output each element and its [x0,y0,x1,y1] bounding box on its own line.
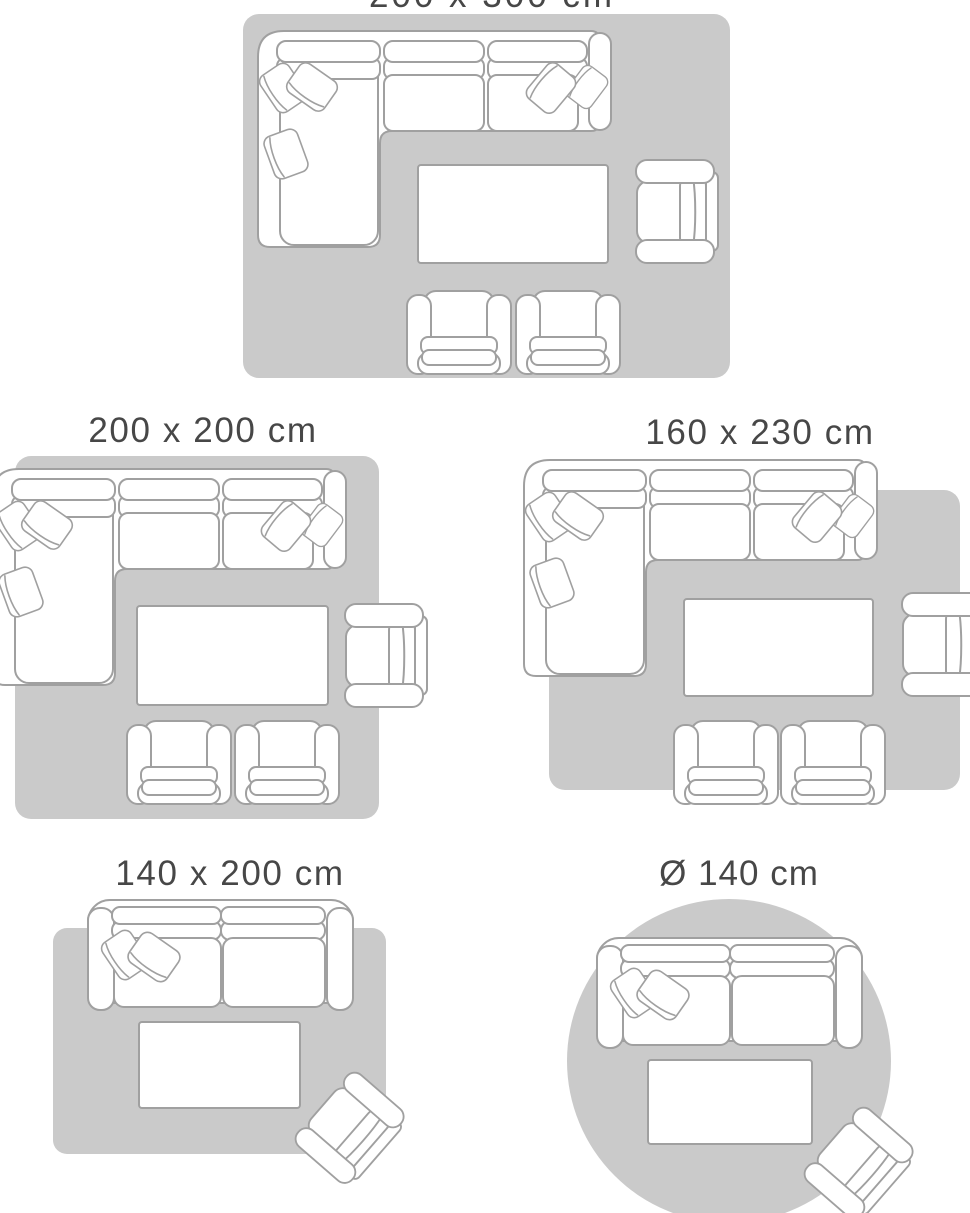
svg-text:140 x 200 cm: 140 x 200 cm [115,854,344,893]
svg-text:Ø 140 cm: Ø 140 cm [659,854,819,893]
svg-text:200 x 300 cm: 200 x 300 cm [369,0,615,15]
svg-text:160 x 230 cm: 160 x 230 cm [645,413,874,452]
svg-text:200 x 200 cm: 200 x 200 cm [88,411,317,450]
